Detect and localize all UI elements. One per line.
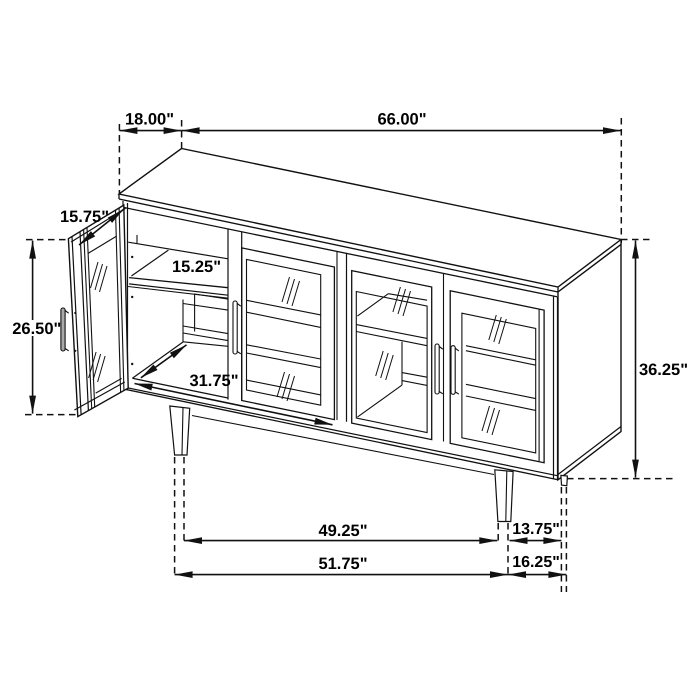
svg-text:51.75": 51.75" (318, 555, 367, 573)
svg-text:49.25": 49.25" (318, 522, 367, 540)
svg-text:66.00": 66.00" (377, 111, 426, 129)
svg-text:13.75": 13.75" (512, 521, 560, 538)
svg-text:15.75": 15.75" (60, 208, 109, 226)
svg-text:26.50": 26.50" (12, 320, 61, 338)
svg-text:15.25": 15.25" (172, 258, 221, 276)
svg-text:31.75": 31.75" (189, 372, 238, 390)
svg-text:18.00": 18.00" (125, 111, 174, 129)
svg-text:16.25": 16.25" (512, 554, 560, 571)
svg-text:36.25": 36.25" (639, 361, 688, 379)
